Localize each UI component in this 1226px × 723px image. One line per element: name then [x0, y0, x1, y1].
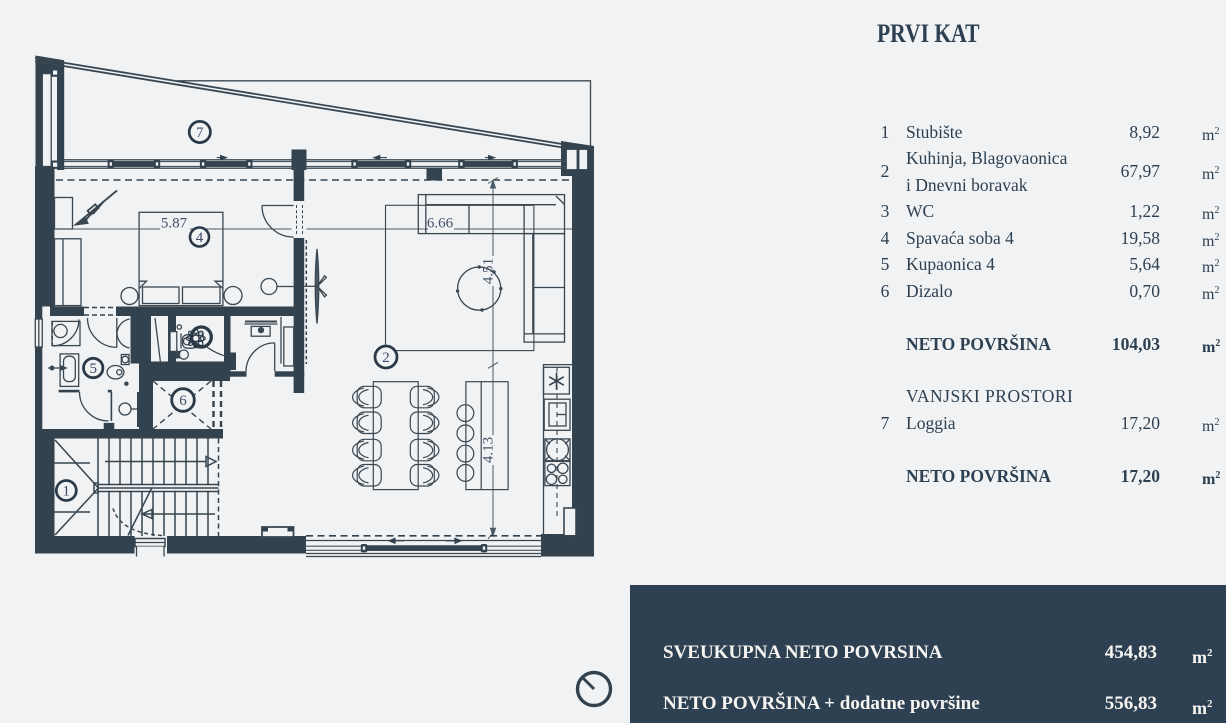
- svg-text:4: 4: [196, 230, 204, 246]
- svg-text:5: 5: [89, 361, 97, 377]
- svg-text:1: 1: [63, 484, 71, 500]
- svg-text:6.66: 6.66: [427, 216, 454, 232]
- svg-text:6: 6: [179, 393, 187, 409]
- svg-text:7: 7: [196, 125, 204, 141]
- svg-text:2: 2: [382, 350, 390, 366]
- svg-text:5.87: 5.87: [161, 216, 188, 232]
- svg-text:4.13: 4.13: [481, 437, 497, 463]
